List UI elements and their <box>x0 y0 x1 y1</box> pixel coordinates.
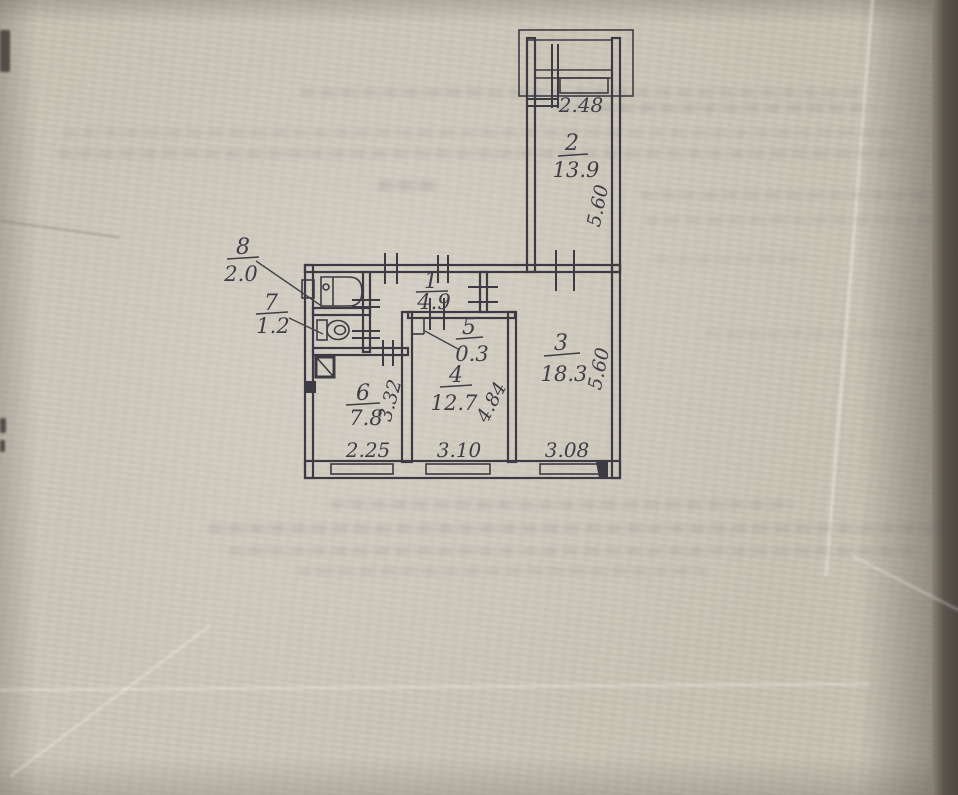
room-2-depth: 5.60 <box>583 183 613 229</box>
door-mark-icon <box>385 253 397 284</box>
room-1-area: 4.9 <box>416 290 450 314</box>
window-icon <box>540 462 608 478</box>
room-4-width: 3.10 <box>437 438 482 462</box>
window-icon <box>426 464 490 474</box>
closet-walls <box>412 318 458 349</box>
room-4-label: 4 12.7 4.84 3.10 <box>431 363 512 462</box>
room-2-width: 2.48 <box>558 93 604 117</box>
window-icon <box>331 464 393 474</box>
bathtub-icon <box>321 277 362 306</box>
room-4-area: 12.7 <box>431 391 478 415</box>
room-2-area: 13.9 <box>553 158 600 182</box>
toilet-icon <box>317 320 349 340</box>
room-6-number: 6 <box>356 381 370 406</box>
room-4-depth: 4.84 <box>472 378 512 427</box>
door-mark-icon <box>556 250 574 291</box>
room-7-area: 1.2 <box>256 314 289 338</box>
room-3-area: 18.3 <box>541 362 588 386</box>
door-mark-icon <box>383 340 393 366</box>
room-2-number: 2 <box>564 131 579 156</box>
room-4-number: 4 <box>448 363 463 388</box>
door-mark-icon <box>468 287 498 302</box>
vent-shaft-icon <box>306 357 334 393</box>
door-mark-icon <box>352 331 380 338</box>
room-3-depth: 5.60 <box>584 346 614 392</box>
room-3-width: 3.08 <box>545 438 590 462</box>
door-mark-icon <box>438 255 448 283</box>
room-3-number: 3 <box>554 331 568 356</box>
room-5-number: 5 <box>462 315 476 340</box>
room-6-label: 6 7.8 3.32 2.25 <box>345 377 407 462</box>
room-8-number: 8 <box>236 235 250 260</box>
room-6-width: 2.25 <box>345 438 391 462</box>
room-2-label: 2.48 2 13.9 5.60 <box>553 93 614 229</box>
room-5-label: 5 0.3 <box>455 315 488 366</box>
room-8-area: 2.0 <box>223 262 257 286</box>
scanned-floor-plan-photo: 2.48 2 13.9 5.60 <box>0 0 958 795</box>
room-3-label: 3 18.3 5.60 3.08 <box>541 331 615 462</box>
room-1-label: 1 4.9 <box>416 269 451 314</box>
partition-walls <box>313 272 516 462</box>
floor-plan-drawing: 2.48 2 13.9 5.60 <box>0 0 958 795</box>
